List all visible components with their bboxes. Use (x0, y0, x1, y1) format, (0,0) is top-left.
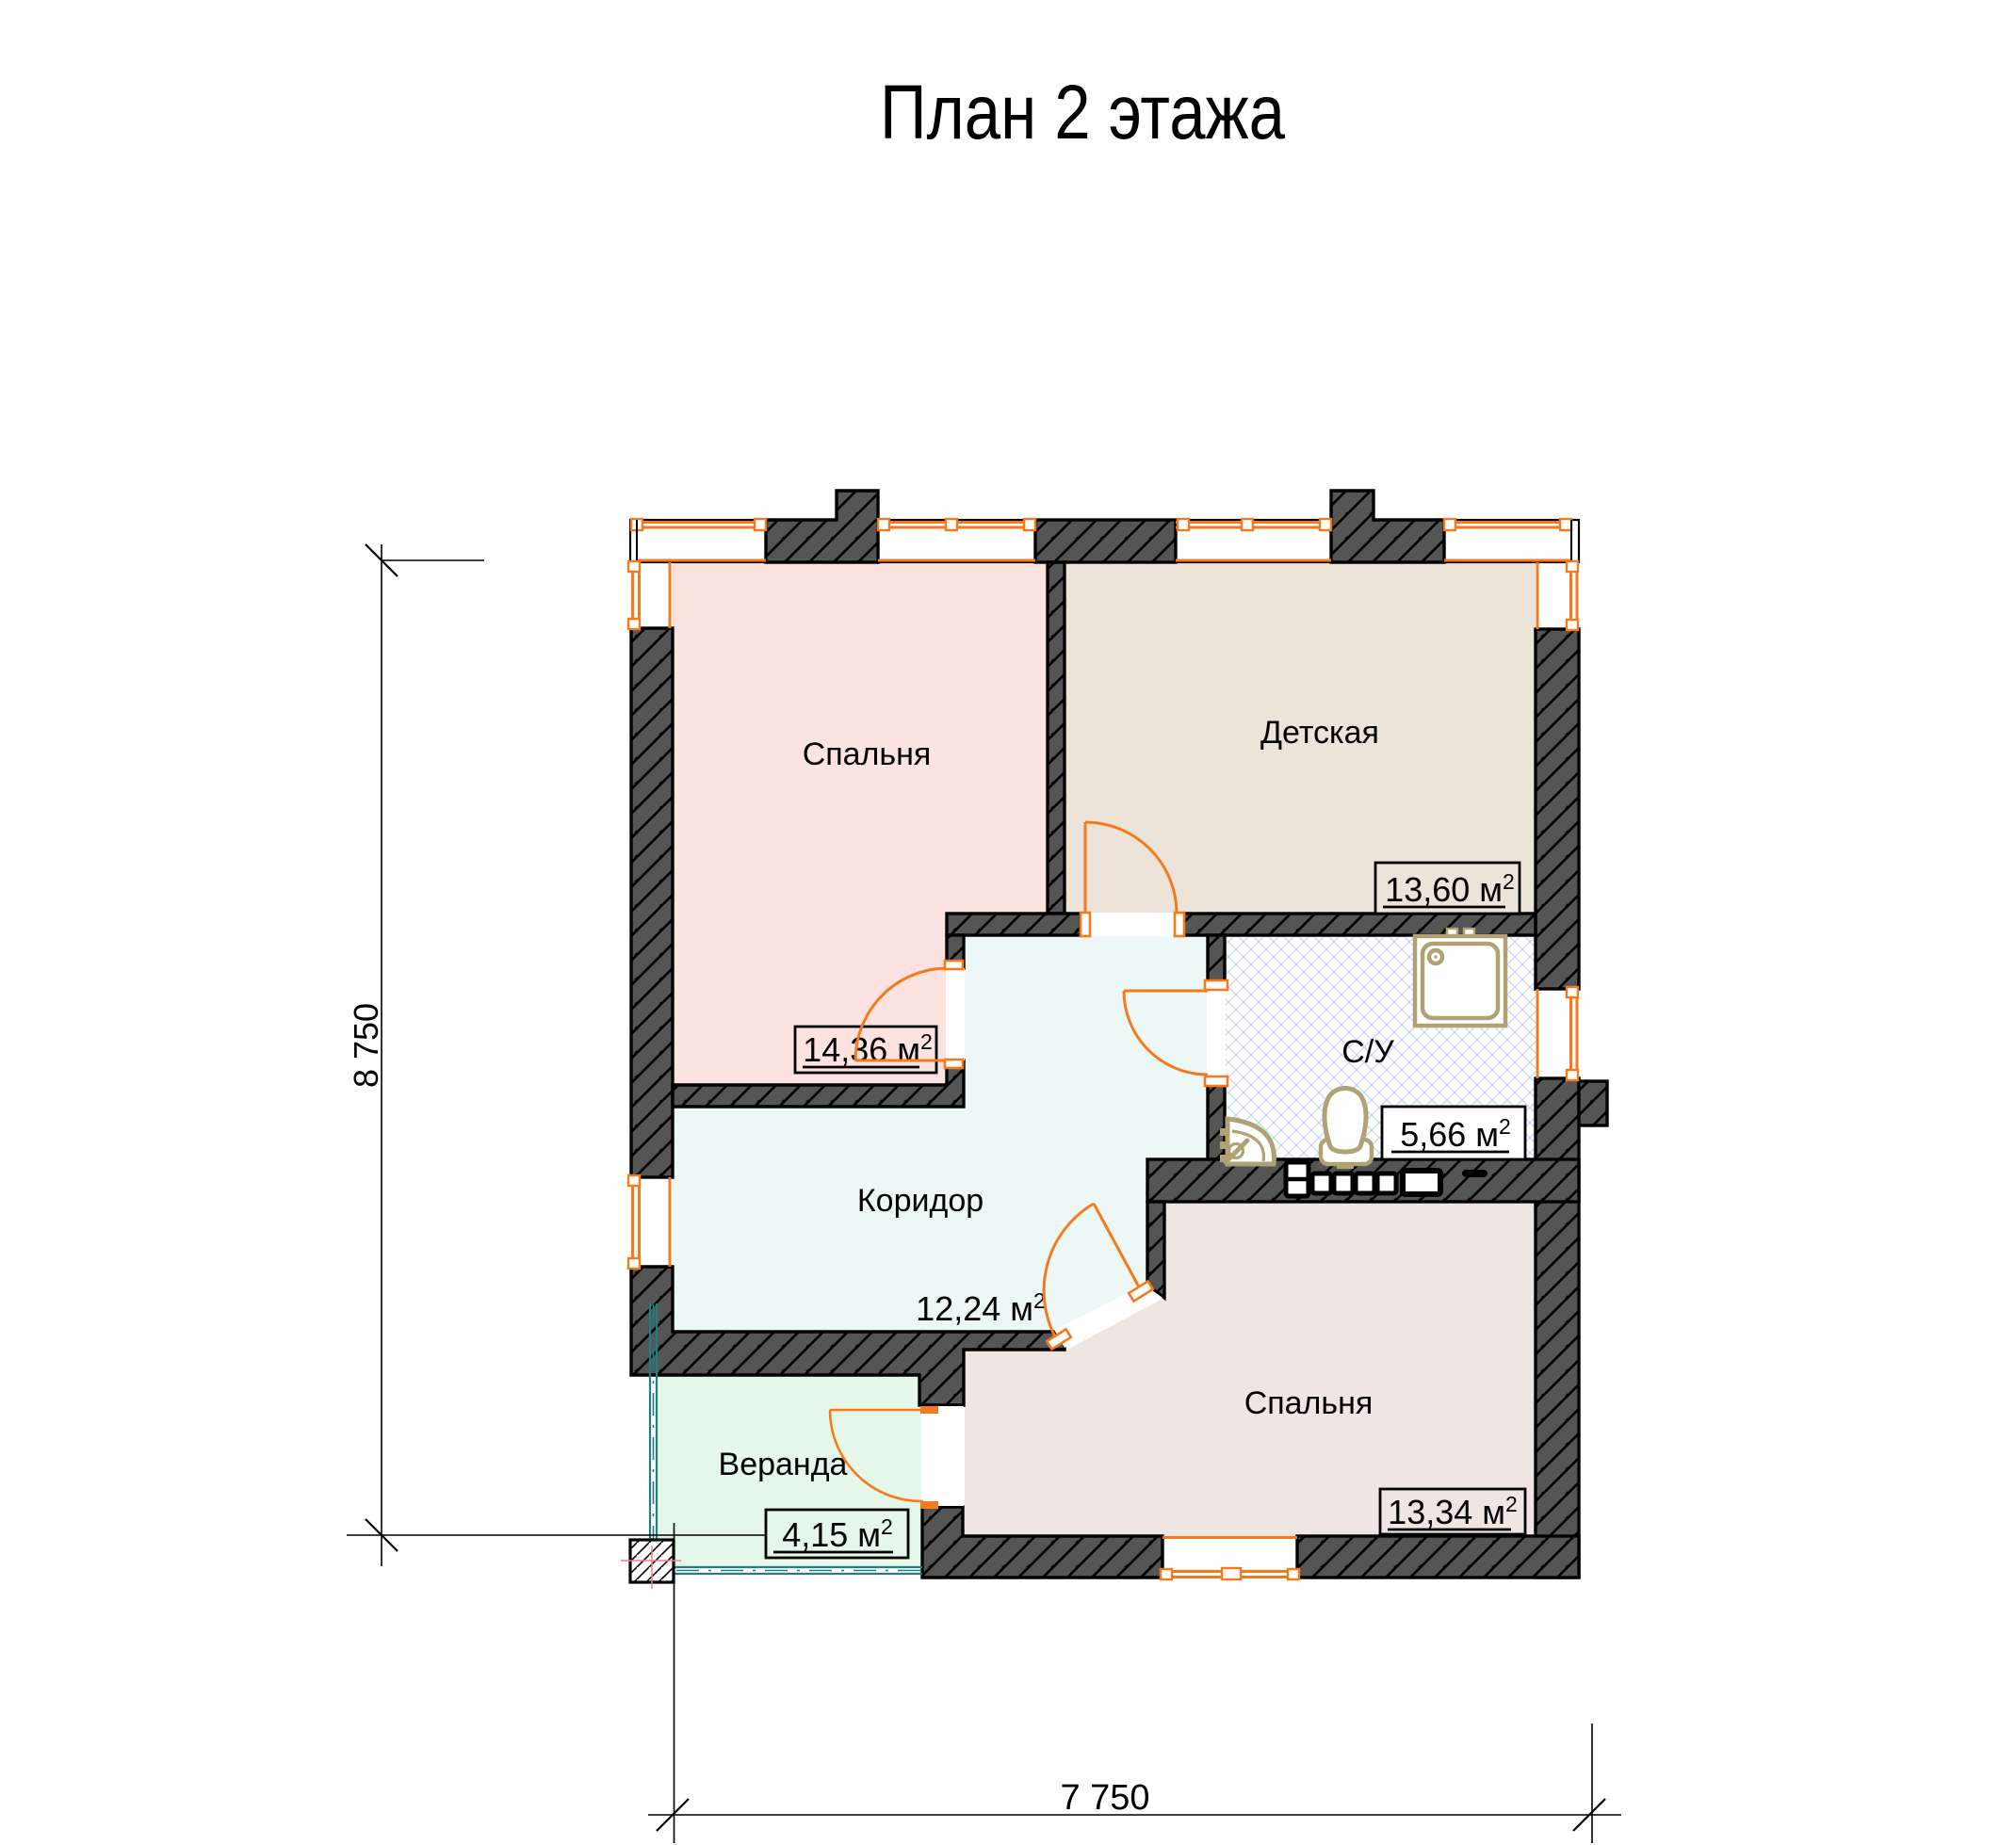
svg-text:Коридор: Коридор (857, 1183, 984, 1219)
svg-text:Детская: Детская (1260, 715, 1379, 751)
svg-text:Веранда: Веранда (719, 1447, 848, 1482)
svg-text:7 750: 7 750 (1060, 1778, 1149, 1818)
svg-text:4,15 м2: 4,15 м2 (782, 1514, 893, 1554)
svg-text:План 2 этажа: План 2 этажа (880, 70, 1285, 155)
svg-text:Спальня: Спальня (1244, 1385, 1374, 1421)
svg-text:С/У: С/У (1341, 1034, 1394, 1070)
svg-text:5,66 м2: 5,66 м2 (1400, 1114, 1511, 1154)
svg-text:13,34 м2: 13,34 м2 (1388, 1492, 1518, 1531)
svg-text:12,24 м2: 12,24 м2 (916, 1288, 1046, 1328)
svg-text:Спальня: Спальня (803, 736, 932, 772)
svg-text:14,36 м2: 14,36 м2 (803, 1029, 933, 1069)
svg-text:8 750: 8 750 (347, 1003, 385, 1088)
svg-text:13,60 м2: 13,60 м2 (1385, 869, 1515, 909)
